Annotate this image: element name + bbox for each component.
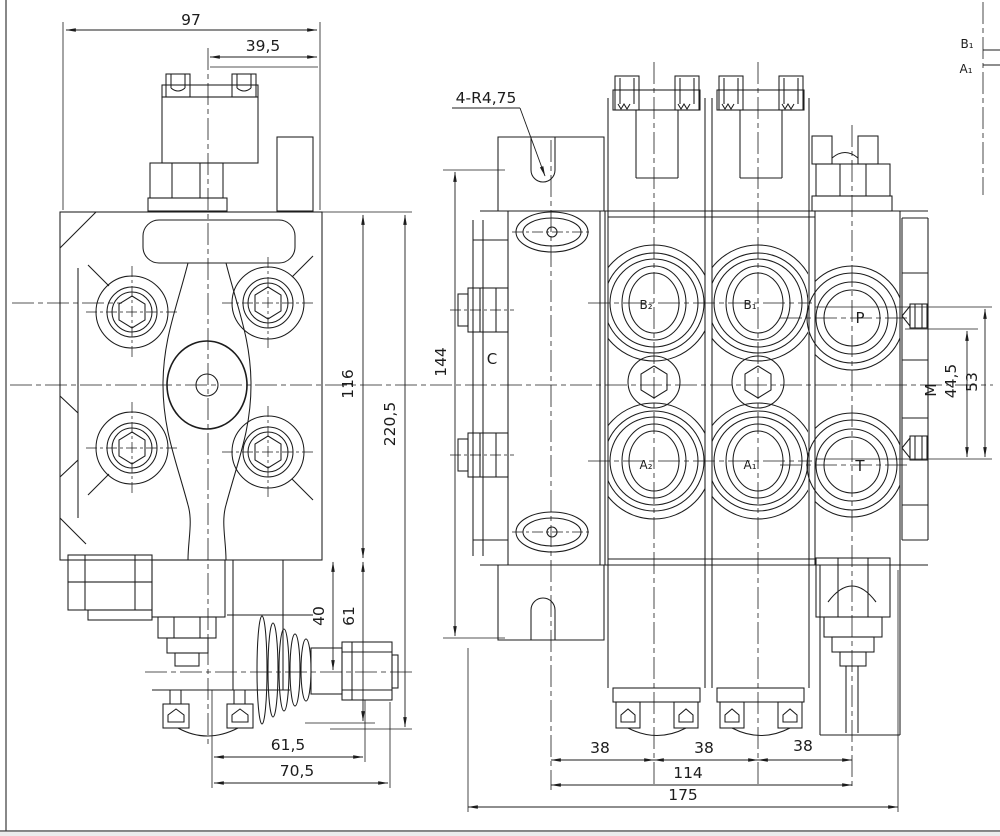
detail-port-label-b1: B₁ bbox=[960, 37, 973, 51]
dim-38-label-3: 38 bbox=[793, 737, 813, 755]
left-view: 97 39,5 116 220,5 40 61 61,5 70,5 bbox=[12, 11, 415, 788]
drawing-frame bbox=[0, 0, 1000, 831]
port-label-a2: A₂ bbox=[639, 458, 652, 472]
dim-70-5-label: 70,5 bbox=[280, 762, 315, 780]
dim-39-5-label: 39,5 bbox=[246, 37, 281, 55]
valve-engineering-drawing: 97 39,5 116 220,5 40 61 61,5 70,5 bbox=[0, 0, 1000, 836]
port-label-p: P bbox=[855, 309, 864, 327]
front-view: C B₂ A₂ bbox=[432, 62, 992, 812]
port-label-t: T bbox=[854, 457, 865, 475]
bolt-crosshairs bbox=[86, 257, 314, 498]
inlet-port-label: C bbox=[487, 350, 497, 368]
dim-175-label: 175 bbox=[668, 786, 698, 804]
dim-44-5-label: 44,5 bbox=[942, 364, 960, 399]
dim-220-5-label: 220,5 bbox=[381, 402, 399, 446]
port-label-a1: A₁ bbox=[743, 458, 756, 472]
valve-body-outline bbox=[60, 212, 322, 560]
dim-114-label: 114 bbox=[673, 764, 703, 782]
end-section bbox=[800, 136, 928, 735]
dim-38-label-2: 38 bbox=[694, 739, 714, 757]
witness-lines bbox=[63, 22, 412, 788]
top-cap-assembly bbox=[148, 74, 313, 211]
left-view-dimensions: 97 39,5 116 220,5 40 61 61,5 70,5 bbox=[63, 11, 412, 788]
dim-53-label: 53 bbox=[963, 372, 981, 392]
dim-40-label: 40 bbox=[310, 606, 328, 626]
body-bolt-bosses bbox=[86, 257, 314, 498]
front-view-crosshairs bbox=[450, 232, 592, 532]
dim-97-label: 97 bbox=[181, 11, 201, 29]
gauge-port-label: M bbox=[922, 383, 940, 396]
slot-radius-label: 4-R4,75 bbox=[456, 89, 517, 107]
port-label-b1: B₁ bbox=[743, 298, 756, 312]
port-label-b2: B₂ bbox=[639, 298, 652, 312]
dim-144-label: 144 bbox=[432, 347, 450, 377]
corner-detail: B₁ A₁ bbox=[959, 2, 1000, 195]
dimension-lines bbox=[66, 30, 405, 783]
dim-116-label: 116 bbox=[339, 369, 357, 399]
detail-port-label-a1: A₁ bbox=[959, 62, 972, 76]
dim-61-5-label: 61,5 bbox=[271, 736, 306, 754]
sheet-margin bbox=[0, 832, 1000, 836]
dim-38-label-1: 38 bbox=[590, 739, 610, 757]
spool-boot-and-clevis bbox=[257, 616, 398, 724]
dim-61-label: 61 bbox=[340, 606, 358, 626]
cad-drawing-canvas: 97 39,5 116 220,5 40 61 61,5 70,5 bbox=[0, 0, 1000, 836]
